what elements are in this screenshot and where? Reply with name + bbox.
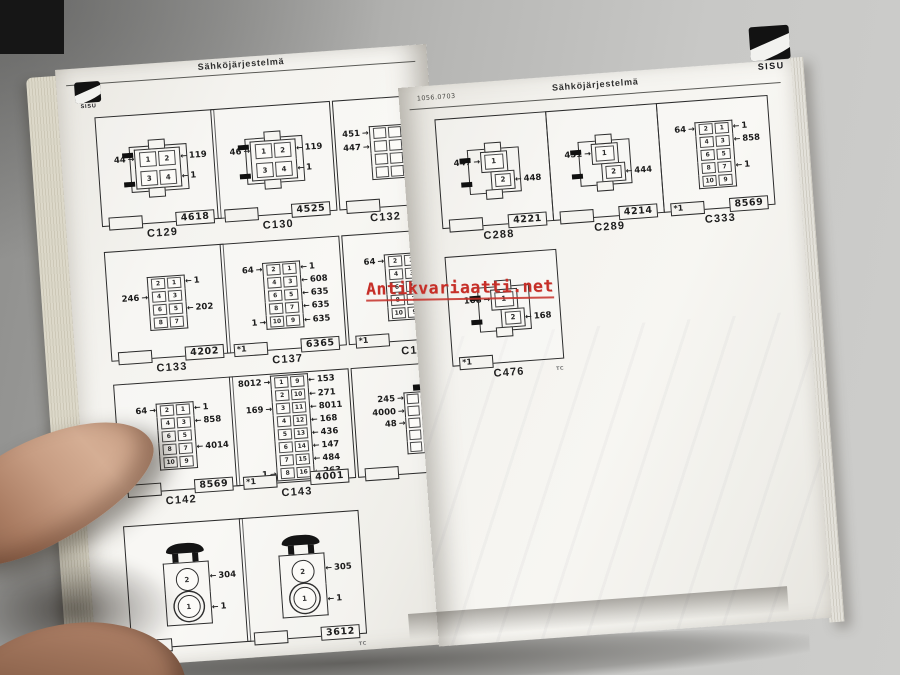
arrow-left-icon: ← <box>327 595 334 603</box>
pin-cell: 16 <box>296 466 311 478</box>
wire-label-left <box>117 311 149 313</box>
wire-number: 1 <box>251 318 258 328</box>
pin-group: 109 <box>266 313 305 330</box>
pin-cell: 4 <box>152 291 167 303</box>
pin-group: 2 <box>500 307 525 328</box>
note-tab: *1 <box>243 475 278 490</box>
wire-label-left <box>374 435 406 437</box>
wire-label-right <box>735 150 767 152</box>
pin-cell: 5 <box>716 147 731 159</box>
pin-cell <box>374 153 388 165</box>
connector-stub <box>461 181 472 187</box>
wire-label-left <box>241 422 273 424</box>
watermark: Antikvariaatti.net <box>366 276 554 301</box>
background-dark-corner <box>0 0 64 54</box>
arrow-left-icon: ← <box>313 454 320 462</box>
wire-label-right: ←119 <box>180 149 211 161</box>
wire-label-right: ←202 <box>187 301 220 313</box>
wire-label-right: ←305 <box>325 561 356 573</box>
arrow-left-icon: ← <box>212 603 219 611</box>
pin-cell <box>389 152 403 164</box>
arrow-left-icon: ← <box>313 441 320 449</box>
note-tab <box>559 209 594 224</box>
pin-cell <box>373 140 387 152</box>
wire-number: 64 <box>674 125 687 136</box>
wire-number: 1 <box>741 120 748 130</box>
wire-label-left: 169→ <box>240 404 273 416</box>
connector-stub <box>459 157 470 163</box>
wire-label-right <box>737 177 769 179</box>
wire-number: 8011 <box>318 399 342 411</box>
wire-label-right: ←1 <box>181 169 212 181</box>
wire-label-right: ←1 <box>185 274 218 286</box>
photo-of-open-manual: Sähköjärjestelmä SISU 44→12←11934←14618C… <box>0 0 900 675</box>
wire-label-right: ←1 <box>327 592 358 604</box>
wire-label-right: ←4014 <box>196 440 229 452</box>
connector-box: 64→21←143←8586587←1109*18569 <box>656 95 776 213</box>
pin-cell: 15 <box>295 453 310 465</box>
wire-label-left <box>353 274 385 276</box>
pin-group: 12 <box>249 138 296 161</box>
connector-drawing: 64→21←143←8586587←1109 <box>662 117 769 191</box>
pin-cell: 1 <box>714 121 729 133</box>
wire-label-left <box>356 314 388 316</box>
wire-number: 168 <box>319 413 337 424</box>
connector-card-c129: 44→12←11934←14618C129 <box>94 109 222 243</box>
pin-cell: 1 <box>167 277 182 289</box>
arrow-left-icon: ← <box>525 312 532 320</box>
wire-label-left <box>239 396 271 398</box>
pin-cell: 4 <box>389 268 404 280</box>
wire-number: 271 <box>318 387 336 398</box>
connector-stub <box>238 145 249 151</box>
wire-number: 153 <box>317 373 335 384</box>
wire-number: 444 <box>634 164 652 175</box>
pin-cell: 13 <box>294 427 309 439</box>
wire-number: 1 <box>193 275 200 285</box>
connector-box: 447→12←4484221 <box>434 111 554 229</box>
pin-cell: 6 <box>161 430 176 442</box>
part-number-tag: 8569 <box>194 477 234 494</box>
part-number-tag: 3612 <box>321 624 361 641</box>
connector-card-c146: 2←3051←13612TC <box>239 510 367 642</box>
wire-label-left <box>665 155 697 157</box>
wire-label-right: ←444 <box>625 164 658 176</box>
wire-label-right: ←1 <box>212 600 243 612</box>
arrow-right-icon: → <box>584 150 591 158</box>
pin-cell: 1 <box>594 145 614 161</box>
part-number-tag: 4214 <box>618 203 658 220</box>
arrow-left-icon: ← <box>300 262 307 270</box>
wire-number: 436 <box>320 426 338 437</box>
wire-label-right <box>188 319 220 321</box>
pin-cell: 5 <box>169 303 184 315</box>
pin-cell: 7 <box>178 442 193 454</box>
wire-number: 8012 <box>238 378 262 390</box>
pin-group: 2 <box>490 169 515 190</box>
pin-cell: 6 <box>268 289 283 301</box>
pin-cell: 5 <box>278 428 293 440</box>
pin-cell: 7 <box>279 454 294 466</box>
note-tab <box>254 630 289 645</box>
arrow-left-icon: ← <box>304 315 311 323</box>
pin-cell: 11 <box>292 401 307 413</box>
note-tab: *1 <box>670 201 705 216</box>
connector-card-c333: 64→21←143←8586587←1109*18569C333 <box>656 95 777 229</box>
pin-cell <box>388 139 402 151</box>
wire-number: 858 <box>203 414 221 425</box>
pin-cell <box>375 166 389 178</box>
pin-cell: 3 <box>256 162 274 178</box>
arrow-left-icon: ← <box>185 277 192 285</box>
connector-card-c289: 451→12←4444214C289 <box>545 103 666 237</box>
pin-cell <box>410 441 423 452</box>
pin-group: 1 <box>281 583 329 618</box>
connector-card-c133: 21←1246→4365←202874202C133 <box>104 244 232 378</box>
sisu-logo-small: SISU <box>70 81 106 111</box>
pin-cell: 8 <box>162 443 177 455</box>
connector-box: 8012→19←153210←271169→311←8011412←168513… <box>229 368 356 486</box>
pin-cell: 4 <box>699 136 714 148</box>
wire-label-right: ←304 <box>209 569 240 581</box>
pin-cell <box>390 165 404 177</box>
pin-cell <box>387 126 401 138</box>
sisu-logo-icon <box>748 25 790 62</box>
arrow-left-icon: ← <box>310 402 317 410</box>
connector-stub <box>122 153 133 159</box>
wire-label-right: ←635 <box>302 286 335 298</box>
wire-label-right <box>198 458 230 460</box>
arrow-left-icon: ← <box>732 122 739 130</box>
wire-label-right: ←168 <box>525 309 558 321</box>
wire-label-left <box>233 309 265 311</box>
part-number-tag: 4001 <box>310 468 350 485</box>
pin-cell: 7 <box>169 316 184 328</box>
pin-number: 2 <box>300 567 305 575</box>
pin-cell: 10 <box>702 174 717 186</box>
pin-cell: 2 <box>274 142 292 158</box>
pin-cell: 3 <box>176 416 191 428</box>
connector-tab <box>485 188 503 199</box>
pin-group: 12 <box>134 146 181 169</box>
wire-number: 484 <box>322 452 340 463</box>
note-tab <box>224 207 259 222</box>
pin-group: 1 <box>590 142 618 165</box>
pin-cell: 8 <box>154 317 169 329</box>
connector-drawing: 46→12←11934←1 <box>220 136 329 183</box>
wire-label-right: ←1 <box>735 158 768 170</box>
pin-group: 87 <box>149 314 188 331</box>
connector-tab <box>149 187 167 198</box>
connector-tab <box>495 326 513 337</box>
connector-stub <box>471 319 482 325</box>
arrow-left-icon: ← <box>625 167 632 175</box>
pin-circle: 2 <box>290 559 315 584</box>
pin-group <box>403 391 422 405</box>
note-tab: *1 <box>355 333 390 348</box>
pin-group: 2 <box>601 161 626 182</box>
pin-circle: 1 <box>176 594 201 619</box>
pin-circle: 1 <box>292 586 317 611</box>
pin-cell: 8 <box>269 302 284 314</box>
wire-number: 246 <box>121 293 139 304</box>
pin-cell: 4 <box>277 415 292 427</box>
right-page: 1056.0703 Sähköjärjestelmä 447→12←448422… <box>398 59 832 646</box>
pin-cell <box>406 393 419 404</box>
pin-group: 1 <box>479 150 507 173</box>
part-number-tag: 4525 <box>291 201 331 218</box>
pin-number: 1 <box>186 602 191 610</box>
wire-label-left <box>664 142 696 144</box>
connector-card-c143: 8012→19←153210←271169→311←8011412←168513… <box>229 368 357 502</box>
wire-number: 64 <box>242 265 255 276</box>
connector-box: 21←1246→4365←202874202 <box>104 244 231 362</box>
wire-number: 635 <box>311 299 329 310</box>
wire-number: 119 <box>189 150 207 161</box>
wire-label-right: ←8011 <box>310 399 343 411</box>
connector-box: 168→12←168*1TC <box>445 249 565 367</box>
arrow-left-icon: ← <box>308 376 315 384</box>
connector-tab <box>484 141 502 152</box>
connector-tab <box>596 180 614 191</box>
connector-box: 2←3051←13612TC <box>239 510 367 642</box>
wire-label-right: ←168 <box>311 412 344 424</box>
pin-cell: 4 <box>267 276 282 288</box>
pin-cell: 1 <box>176 403 191 415</box>
pin-cell: 4 <box>161 417 176 429</box>
pin-cell: 10 <box>291 388 306 400</box>
pin-cell: 3 <box>715 134 730 146</box>
pin-group: 109 <box>698 172 737 189</box>
pin-cell: 3 <box>168 290 183 302</box>
connector-card-c288: 447→12←4484221C288 <box>434 111 555 245</box>
arrow-left-icon: ← <box>303 302 310 310</box>
wire-number: 1 <box>306 162 313 172</box>
wire-label-right: ←608 <box>301 273 334 285</box>
wire-number: 245 <box>377 394 395 405</box>
wire-number: 147 <box>321 439 339 450</box>
pin-cell: 2 <box>495 172 512 186</box>
wire-label-left: 8012→ <box>238 378 271 390</box>
pin-number: 1 <box>302 594 307 602</box>
pin-cell: 9 <box>286 314 301 326</box>
pin-cell: 1 <box>484 153 504 169</box>
arrow-left-icon: ← <box>302 289 309 297</box>
arrow-left-icon: ← <box>187 303 194 311</box>
wire-label-left: 245→ <box>371 393 404 405</box>
arrow-left-icon: ← <box>311 415 318 423</box>
note-tab: *1 <box>459 355 494 370</box>
wire-label-left <box>339 160 371 162</box>
connector-drawing: 447→12←448 <box>441 147 548 194</box>
pin-cell: 4 <box>159 169 177 185</box>
wire-label-left <box>667 182 699 184</box>
pin-cell: 9 <box>718 173 733 185</box>
connector-card-c476: 168→12←168*1TCC476 <box>445 249 566 383</box>
note-tab <box>365 466 400 481</box>
wire-label-left <box>250 571 280 573</box>
connector-box: 64→21←143←60865←63587←6351→109←635*16365 <box>220 236 347 354</box>
wire-label-left <box>244 461 276 463</box>
wire-label-right: ←1 <box>732 119 765 131</box>
pin-cell: 8 <box>701 161 716 173</box>
arrow-left-icon: ← <box>209 571 216 579</box>
wire-label-left <box>118 324 150 326</box>
wire-label-right: ←484 <box>313 451 346 463</box>
wire-number: 448 <box>523 172 541 183</box>
pin-cell: 14 <box>294 440 309 452</box>
arrow-left-icon: ← <box>325 563 332 571</box>
wire-label-right <box>186 293 218 295</box>
part-number-tag: 4221 <box>508 211 548 228</box>
pin-cell: 6 <box>153 304 168 316</box>
wire-label-right: ←1 <box>300 260 333 272</box>
wire-number: 608 <box>310 274 328 285</box>
connector-drawing: 21←1246→4365←20287 <box>115 272 221 333</box>
wire-label-left <box>375 447 407 449</box>
arrow-left-icon: ← <box>195 417 202 425</box>
wire-label-left <box>666 168 698 170</box>
arrow-left-icon: ← <box>735 161 742 169</box>
pin-cell: 2 <box>605 164 622 178</box>
wire-number: 1 <box>309 261 316 271</box>
connector-card-c130: 46→12←11934←14525C130 <box>210 101 338 235</box>
wire-label-right: ←1 <box>297 161 328 173</box>
wire-label-right: ←858 <box>733 132 766 144</box>
connector-stub <box>572 173 583 179</box>
print-code: TC <box>556 366 564 373</box>
arrow-left-icon: ← <box>515 175 522 183</box>
connector-box: 46→12←11934←14525 <box>210 101 337 219</box>
wire-label-left <box>243 448 275 450</box>
wire-label-left: 451→ <box>336 128 369 140</box>
connector-stub <box>124 182 135 188</box>
pin-cell: 4 <box>275 161 293 177</box>
wire-label-right: ←119 <box>296 141 327 153</box>
wire-number: 1 <box>220 601 227 611</box>
note-tab <box>108 215 143 230</box>
pin-row: 1←1 <box>251 581 359 620</box>
sisu-logo-icon <box>74 81 101 104</box>
pin-cell: 10 <box>391 307 406 319</box>
wire-number: 451 <box>342 129 360 140</box>
arrow-left-icon: ← <box>733 135 740 143</box>
wire-label-right <box>196 432 228 434</box>
wire-label-left <box>115 284 147 286</box>
wire-label-right: ←635 <box>304 313 337 325</box>
wire-number: 304 <box>218 569 236 580</box>
pin-group <box>407 440 426 454</box>
pin-group: 109 <box>159 454 198 471</box>
pin-cell: 5 <box>284 288 299 300</box>
right-page-connector-grid: 447→12←4484221C288451→12←4444214C28964→2… <box>398 59 832 646</box>
wire-number: 1 <box>744 159 751 169</box>
pin-cell <box>372 127 386 139</box>
part-number-tag: 6365 <box>300 336 340 353</box>
part-number-tag: 8569 <box>729 195 769 212</box>
wire-number: 64 <box>135 406 148 417</box>
pin-cell <box>408 417 421 428</box>
connector-stub <box>240 174 251 180</box>
pin-cell: 2 <box>160 404 175 416</box>
note-tab: *1 <box>234 342 269 357</box>
wire-label-left <box>340 173 372 175</box>
wire-label-left <box>232 296 264 298</box>
wire-number: 168 <box>533 310 551 321</box>
wire-number: 447 <box>343 142 361 153</box>
wire-number: 4000 <box>372 407 396 419</box>
wire-number: 1 <box>190 170 197 180</box>
wire-label-right: ←1 <box>194 400 227 412</box>
arrow-left-icon: ← <box>301 276 308 284</box>
wire-label-left: 64→ <box>124 405 157 417</box>
wire-number: 1 <box>202 402 209 412</box>
pin-circle: 2 <box>175 567 200 592</box>
arrow-left-icon: ← <box>309 389 316 397</box>
wire-label-left <box>242 435 274 437</box>
wire-label-right: ←448 <box>515 172 548 184</box>
pin-cell: 1 <box>139 151 157 167</box>
wire-number: 858 <box>742 133 760 144</box>
pin-cell: 2 <box>151 278 166 290</box>
connector-tab <box>148 139 166 150</box>
wire-number: 635 <box>312 313 330 324</box>
wire-number: 4014 <box>205 440 229 452</box>
wire-label-left <box>231 283 263 285</box>
sisu-logo-large: SISU <box>740 24 799 73</box>
wire-number: 305 <box>334 561 352 572</box>
connector-tab <box>594 133 612 144</box>
pin-cell: 9 <box>179 455 194 467</box>
pin-cell: 2 <box>505 310 522 324</box>
wire-number: 169 <box>245 405 263 416</box>
wire-label-right: ←153 <box>308 373 341 385</box>
arrow-left-icon: ← <box>181 172 188 180</box>
wire-number: 635 <box>311 286 329 297</box>
pin-cell: 12 <box>293 414 308 426</box>
wire-label-right: ←635 <box>303 299 336 311</box>
note-tab <box>346 199 381 214</box>
wire-label-left: 447→ <box>337 142 370 154</box>
pin-cell: 1 <box>255 143 273 159</box>
pin-number: 2 <box>184 575 189 583</box>
pin-cell: 9 <box>290 375 305 387</box>
print-code: TC <box>359 641 367 648</box>
wire-number: 48 <box>385 419 398 430</box>
connector-tab <box>263 130 281 141</box>
pin-cell: 10 <box>163 456 178 468</box>
connector-stub <box>570 149 581 155</box>
connector-tab <box>265 178 283 189</box>
pin-cell: 2 <box>698 123 713 135</box>
connector-box: 451→12←4444214 <box>545 103 665 221</box>
connector-drawing: 44→12←11934←1 <box>104 144 213 191</box>
wire-label-left: 64→ <box>663 124 696 136</box>
part-number-tag: 4202 <box>185 344 225 361</box>
arrow-left-icon: ← <box>297 164 304 172</box>
wire-label-right: ←436 <box>312 425 345 437</box>
wire-label-right: ←271 <box>309 386 342 398</box>
pin-cell: 6 <box>279 441 294 453</box>
pin-cell: 3 <box>283 275 298 287</box>
pin-cell <box>407 405 420 416</box>
wire-label-left: 64→ <box>230 265 263 277</box>
pin-cell <box>409 429 422 440</box>
wire-number: 1 <box>336 593 343 603</box>
wire-label-left: 64→ <box>352 256 385 268</box>
pin-cell: 3 <box>140 170 158 186</box>
note-tab <box>118 350 153 365</box>
